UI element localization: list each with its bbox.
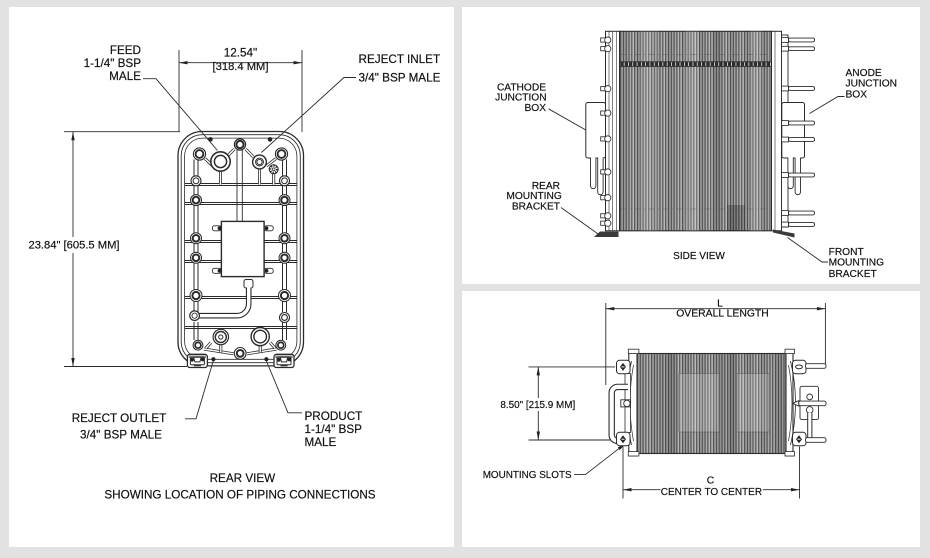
svg-text:12.54": 12.54"	[224, 47, 257, 60]
svg-text:MALE: MALE	[109, 70, 141, 83]
svg-text:MOUNTING: MOUNTING	[829, 258, 885, 269]
svg-text:MALE: MALE	[305, 436, 337, 449]
svg-text:REJECT OUTLET: REJECT OUTLET	[72, 412, 167, 425]
svg-text:[318.4 MM]: [318.4 MM]	[213, 61, 269, 73]
svg-text:SHOWING LOCATION OF PIPING CON: SHOWING LOCATION OF PIPING CONNECTIONS	[104, 489, 375, 502]
svg-text:BOX: BOX	[846, 89, 868, 100]
svg-text:JUNCTION: JUNCTION	[495, 92, 547, 103]
svg-text:BRACKET: BRACKET	[512, 201, 560, 212]
svg-text:OVERALL LENGTH: OVERALL LENGTH	[676, 309, 769, 320]
svg-text:CENTER TO CENTER: CENTER TO CENTER	[661, 487, 762, 498]
svg-text:1-1/4" BSP: 1-1/4" BSP	[84, 57, 142, 70]
svg-text:23.84" [605.5 MM]: 23.84" [605.5 MM]	[28, 240, 119, 252]
svg-text:REAR VIEW: REAR VIEW	[210, 472, 276, 485]
svg-text:JUNCTION: JUNCTION	[846, 78, 898, 89]
svg-text:MOUNTING SLOTS: MOUNTING SLOTS	[483, 470, 572, 481]
svg-text:BRACKET: BRACKET	[829, 269, 877, 280]
svg-text:PRODUCT: PRODUCT	[305, 410, 363, 423]
svg-text:3/4" BSP MALE: 3/4" BSP MALE	[80, 429, 162, 442]
svg-text:SIDE VIEW: SIDE VIEW	[673, 251, 725, 262]
svg-text:C: C	[707, 475, 715, 486]
svg-text:8.50" [215.9 MM]: 8.50" [215.9 MM]	[500, 400, 575, 411]
svg-text:BOX: BOX	[524, 103, 546, 114]
svg-text:FEED: FEED	[110, 44, 141, 57]
svg-text:REJECT INLET: REJECT INLET	[359, 53, 441, 66]
svg-text:1-1/4" BSP: 1-1/4" BSP	[305, 423, 363, 436]
svg-text:3/4" BSP MALE: 3/4" BSP MALE	[359, 72, 441, 85]
